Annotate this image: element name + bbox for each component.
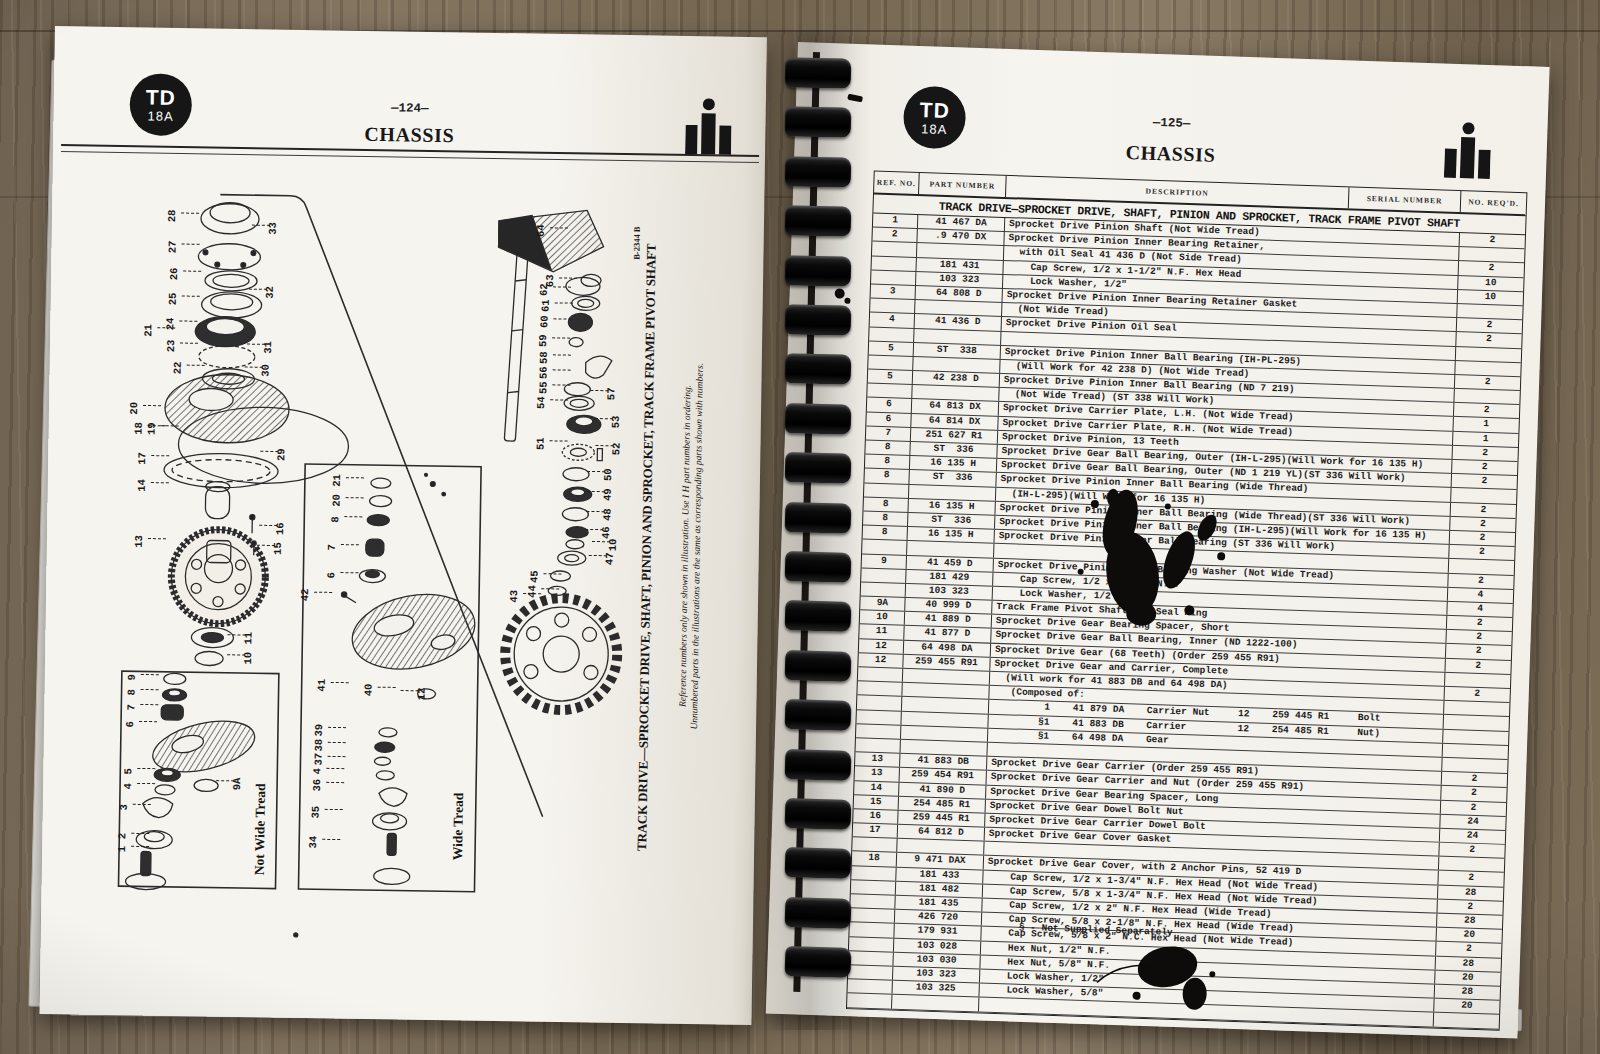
cell-req: 2 (1450, 517, 1515, 532)
callout-number: 7 (326, 544, 338, 551)
cell-req: 2 (1454, 403, 1519, 418)
cell-ref (856, 724, 901, 739)
cell-ref: 5 (869, 341, 914, 356)
callout-number: 22 (172, 362, 184, 375)
cell-ref (872, 256, 917, 271)
right-page: TD 18A —125— CHASSIS REF. NO.PART NUMBER… (766, 42, 1550, 1038)
callout-number: 35 (310, 806, 322, 819)
left-page: TD 18A —124— CHASSIS (39, 26, 766, 1025)
cell-req: 2 (1445, 687, 1510, 702)
callout-number: 9A (231, 777, 243, 790)
cell-ref (847, 993, 892, 1008)
cell-ref (851, 866, 896, 881)
cell-req: 2 (1446, 630, 1511, 645)
cell-req: 28 (1437, 914, 1502, 929)
cell-ref: 9 (862, 554, 907, 569)
callout-number: 46 (600, 526, 612, 539)
cell-ref: 10 (860, 611, 905, 626)
cell-ref: 16 (853, 809, 898, 824)
table-header-cell: PART NUMBER (919, 173, 1007, 197)
cell-ref: 2 (872, 228, 917, 243)
callout-number: 61 (540, 299, 552, 312)
cell-req: 2 (1446, 644, 1511, 659)
cell-req: 10 (1458, 276, 1523, 291)
cell-ref (861, 582, 906, 597)
callout-number: 8 (125, 689, 137, 696)
cell-ref (858, 667, 903, 682)
callout-number: 9 (126, 674, 138, 681)
callout-number: 17 (136, 452, 148, 465)
cell-ref: 8 (864, 497, 909, 512)
cell-req: 2 (1449, 545, 1514, 560)
cell-req: 10 (1458, 290, 1523, 305)
callout-number: 12 (415, 687, 427, 700)
callout-number: 11 (242, 632, 254, 645)
cell-req (1442, 758, 1507, 773)
cell-ref (851, 880, 896, 895)
cell-part (892, 995, 979, 1011)
callout-number: 10 (242, 652, 254, 665)
cell-req: 2 (1447, 616, 1512, 631)
callout-number: 4 (122, 783, 134, 790)
cell-req (1449, 559, 1514, 574)
callout-number: 41 (316, 679, 328, 692)
cell-req: 2 (1453, 446, 1518, 461)
cell-ref: 6 (867, 398, 912, 413)
cell-req (1434, 1013, 1499, 1028)
cell-ref: 7 (866, 426, 911, 441)
cell-req: 2 (1452, 474, 1517, 489)
cell-ref (871, 270, 916, 285)
cell-ref: 17 (853, 823, 898, 838)
callout-number: 25 (167, 292, 179, 305)
cell-req: 20 (1435, 970, 1500, 985)
callout-number: 23 (165, 339, 177, 352)
cell-ref: 8 (864, 469, 909, 484)
cell-ref (857, 696, 902, 711)
table-header-cell: SERIAL NUMBER (1349, 187, 1462, 212)
cell-req (1443, 744, 1508, 759)
cell-ref (862, 540, 907, 555)
callout-number: 37 (312, 753, 324, 766)
figure-caption-title: TRACK DRIVE—SPROCKET DRIVE, SHAFT, PINIO… (634, 243, 659, 851)
cell-req: 28 (1438, 885, 1503, 900)
callout-number: 34 (307, 836, 319, 849)
cell-req: 2 (1442, 772, 1507, 787)
cell-ref (868, 355, 913, 370)
cell-ref: 18 (852, 852, 897, 867)
callout-number: 29 (275, 448, 287, 461)
cell-ref: 14 (854, 781, 899, 796)
callout-number: 51 (534, 437, 546, 450)
cell-req: 4 (1448, 588, 1513, 603)
callout-number: 40 (363, 684, 375, 697)
callout-number: 5 (122, 768, 134, 775)
callout-number: 8 (329, 516, 341, 523)
callout-number: 4 (311, 768, 323, 775)
cell-ref (849, 937, 894, 952)
callout-number: 15 (272, 542, 284, 555)
cell-req: 20 (1434, 999, 1499, 1014)
callout-number: 52 (610, 442, 622, 455)
wide-tread-label: Wide Tread (450, 792, 466, 860)
cell-ref (850, 908, 895, 923)
cell-ref (849, 923, 894, 938)
cell-req (1444, 701, 1509, 716)
cell-ref (870, 299, 915, 314)
cell-ref: 15 (854, 795, 899, 810)
cell-ref (848, 951, 893, 966)
exploded-parts-diagram: 2827262524232221201819171413333231302916… (39, 154, 764, 1025)
cell-ref (872, 242, 917, 257)
cell-req (1454, 389, 1519, 404)
callout-number: 14 (136, 479, 148, 492)
cell-ref: 8 (865, 440, 910, 455)
callout-number: 60 (538, 315, 550, 328)
callout-number: 20 (330, 494, 342, 507)
cell-req: 4 (1447, 602, 1512, 617)
callout-number: 59 (537, 334, 549, 347)
callout-number: 56 (538, 366, 550, 379)
cell-ref: 4 (870, 313, 915, 328)
callout-number: 48 (601, 508, 613, 521)
cell-req (1459, 247, 1524, 262)
cell-ref (857, 682, 902, 697)
cell-ref: 12 (858, 653, 903, 668)
callout-number: 2 (116, 833, 128, 840)
photo-of-open-parts-manual: TD 18A —124— CHASSIS (0, 0, 1600, 1054)
callout-number: 21 (142, 324, 154, 337)
cell-req (1455, 361, 1520, 376)
cell-ref: 13 (855, 752, 900, 767)
parts-table-body: 141 467 DASprocket Drive Pinion Shaft (N… (847, 214, 1525, 1030)
callout-number: 13 (133, 535, 145, 548)
callout-number: 55 (537, 381, 549, 394)
cell-req (1439, 857, 1504, 872)
cell-req (1457, 304, 1522, 319)
callout-number: 64 (535, 224, 547, 237)
cell-req: 2 (1457, 318, 1522, 333)
cell-req: 2 (1441, 786, 1506, 801)
table-header-cell: NO. REQ'D. (1461, 191, 1527, 214)
cell-req (1445, 673, 1510, 688)
cell-req: 2 (1439, 843, 1504, 858)
cell-req: 2 (1445, 658, 1510, 673)
callout-number: 21 (331, 474, 343, 487)
callout-number: 10 (607, 538, 619, 551)
cell-ref: 5 (868, 370, 913, 385)
callout-number: 33 (267, 222, 279, 235)
cell-req: 2 (1438, 871, 1503, 886)
parts-table: REF. NO.PART NUMBERDESCRIPTIONSERIAL NUM… (846, 171, 1527, 1031)
cell-req (1444, 715, 1509, 730)
cell-ref (856, 738, 901, 753)
cell-req: 2 (1456, 332, 1521, 347)
cell-req: 2 (1455, 375, 1520, 390)
cell-req: 2 (1436, 942, 1501, 957)
callout-number: 32 (264, 286, 276, 299)
callout-number: 20 (128, 402, 140, 415)
cell-ref: 13 (855, 767, 900, 782)
cell-req (1451, 488, 1516, 503)
cell-req: 2 (1451, 502, 1516, 517)
cell-ref: 12 (859, 639, 904, 654)
callout-number: 31 (262, 341, 274, 354)
cell-req: 24 (1440, 829, 1505, 844)
callout-number: 3 (118, 804, 130, 811)
cell-ref (848, 979, 893, 994)
callout-number: 7 (125, 704, 137, 711)
cell-req: 28 (1435, 985, 1500, 1000)
callout-number: 27 (166, 240, 178, 253)
cell-ref: 8 (865, 455, 910, 470)
cell-ref: 6 (866, 412, 911, 427)
ih-logo (1444, 122, 1492, 181)
cell-ref (856, 710, 901, 725)
cell-req: 20 (1437, 928, 1502, 943)
ih-logo (685, 98, 732, 157)
callout-number: 19 (146, 422, 158, 435)
callout-number: 50 (602, 468, 614, 481)
cell-req (1443, 729, 1508, 744)
not-wide-tread-label: Not Wide Tread (252, 783, 268, 875)
callout-number: 47 (604, 552, 616, 565)
cell-ref (861, 568, 906, 583)
callout-number: 57 (605, 387, 617, 400)
cell-req: 2 (1460, 233, 1525, 248)
cell-req: 28 (1436, 956, 1501, 971)
callout-number: 54 (535, 396, 547, 409)
cell-req (1456, 346, 1521, 361)
callout-number: 28 (166, 209, 178, 222)
cell-req: 2 (1448, 573, 1513, 588)
callout-number: 39 (313, 724, 325, 737)
callout-number: 44 (526, 585, 538, 598)
cell-ref (848, 965, 893, 980)
callout-number: 58 (538, 351, 550, 364)
callout-number: 62 (538, 283, 550, 296)
cell-ref (850, 894, 895, 909)
cell-ref: 3 (871, 284, 916, 299)
cell-ref (867, 384, 912, 399)
callout-number: 26 (168, 268, 180, 281)
cell-req: 1 (1453, 417, 1518, 432)
table-header-cell: REF. NO. (874, 172, 920, 194)
callout-number: 6 (325, 572, 337, 579)
callout-number: 43 (508, 590, 520, 603)
figure-number-label: B-2344 B (631, 226, 642, 260)
cell-req: 2 (1437, 900, 1502, 915)
cell-req: 2 (1441, 800, 1506, 815)
cell-ref: 8 (863, 526, 908, 541)
cell-ref: 1 (873, 214, 918, 229)
callout-number: 53 (610, 415, 622, 428)
callout-number: 49 (602, 488, 614, 501)
cell-req: 2 (1450, 531, 1515, 546)
callout-number: 1 (116, 846, 128, 853)
callout-number: 18 (133, 422, 145, 435)
cell-ref (852, 837, 897, 852)
cell-req: 2 (1452, 460, 1517, 475)
callout-number: 42 (299, 589, 311, 602)
callout-number: 45 (528, 570, 540, 583)
cell-ref: 9A (860, 596, 905, 611)
callout-number: 16 (274, 522, 286, 535)
callout-number: 36 (311, 779, 323, 792)
cell-ref (869, 327, 914, 342)
callout-number: 30 (260, 364, 272, 377)
cell-req: 24 (1440, 814, 1505, 829)
callout-number: 38 (313, 739, 325, 752)
callout-number: 6 (124, 721, 136, 728)
cell-req: 2 (1459, 261, 1524, 276)
cell-ref: 11 (859, 625, 904, 640)
cell-ref: 8 (863, 511, 908, 526)
cell-ref (864, 483, 909, 498)
cell-req: 1 (1453, 432, 1518, 447)
